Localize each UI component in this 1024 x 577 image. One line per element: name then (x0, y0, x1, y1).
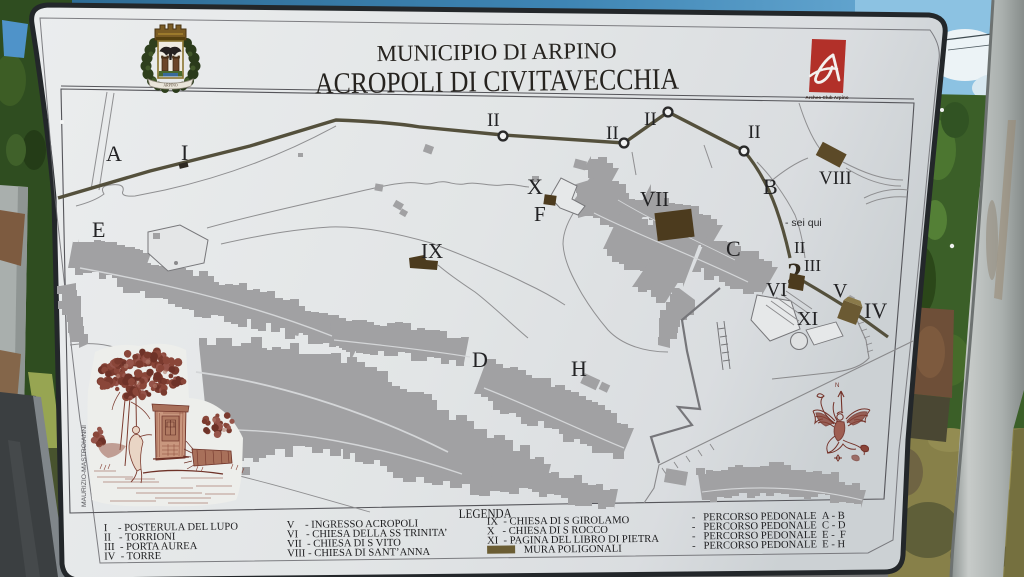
svg-text:D: D (472, 347, 488, 372)
svg-text:I: I (181, 140, 188, 165)
svg-text:MUNICIPIO DI ARPINO: MUNICIPIO DI ARPINO (377, 38, 617, 66)
svg-text:A: A (106, 141, 122, 166)
svg-text:ARPINO: ARPINO (163, 84, 177, 88)
svg-text:- PERCORSO PEDONALE E - H: - PERCORSO PEDONALE E - H (692, 539, 845, 552)
svg-text:II: II (487, 110, 500, 131)
svg-text:III: III (804, 256, 821, 275)
svg-text:C: C (726, 236, 741, 261)
svg-text:IV: IV (864, 298, 887, 323)
svg-text:VIII: VIII (819, 168, 852, 189)
svg-text:X: X (527, 174, 543, 199)
svg-text:B: B (763, 174, 778, 199)
svg-text:IX: IX (421, 239, 443, 263)
svg-text:II: II (644, 109, 657, 130)
svg-text:V: V (833, 280, 848, 302)
svg-text:II: II (794, 238, 806, 257)
svg-text:H: H (571, 356, 587, 381)
svg-text:- sei qui: - sei qui (785, 217, 822, 229)
svg-text:F: F (534, 202, 546, 226)
svg-text:MAURIZIO-MASTROIANNI: MAURIZIO-MASTROIANNI (81, 425, 88, 507)
svg-text:VII: VII (640, 187, 669, 211)
svg-text:VIII - CHIESA DI SANT’ANNA: VIII - CHIESA DI SANT’ANNA (287, 547, 430, 560)
svg-text:N: N (835, 383, 839, 389)
svg-text:II: II (606, 123, 619, 144)
svg-text:II: II (748, 122, 761, 143)
svg-text:ACROPOLI DI CIVITAVECCHIA: ACROPOLI DI CIVITAVECCHIA (315, 63, 680, 101)
svg-text:E: E (92, 217, 105, 242)
svg-text:VI: VI (766, 279, 787, 301)
svg-text:Archeo Club Arpino: Archeo Club Arpino (805, 95, 848, 100)
svg-text:MURA POLIGONALI: MURA POLIGONALI (521, 544, 622, 556)
svg-text:XI: XI (797, 308, 818, 330)
svg-text:IV - TORRE: IV - TORRE (104, 551, 161, 563)
